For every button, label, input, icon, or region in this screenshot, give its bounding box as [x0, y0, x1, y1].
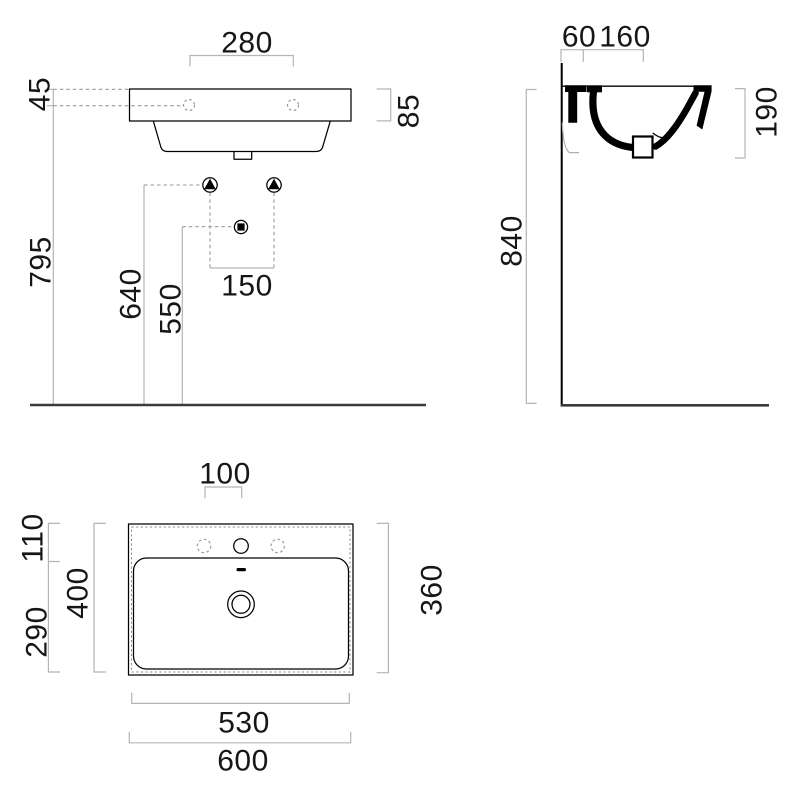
washbasin-technical-drawing: 280 45 795 85 640 550 150	[0, 0, 800, 800]
dim-label-overall-depth: 400	[62, 567, 95, 619]
section-exterior-profile	[562, 123, 579, 153]
dim-label-inner-depth: 360	[416, 564, 449, 616]
drawing-svg: 280 45 795 85 640 550 150	[0, 0, 800, 800]
dim-bracket-inner-depth	[377, 523, 389, 672]
drain-point-square-icon	[237, 223, 244, 230]
plan-overflow-slot	[237, 568, 247, 571]
dim-label-section-depth: 190	[751, 86, 784, 138]
dim-label-drain-height: 550	[155, 283, 188, 335]
dim-label-rim-height: 840	[496, 215, 529, 267]
dim-label-tap-axis-height: 795	[25, 236, 58, 288]
section-front-bowl-wall	[656, 93, 696, 147]
basin-section	[562, 85, 712, 157]
dim-label-tap-pitch: 100	[199, 458, 251, 491]
front-view: 280 45 795 85 640 550 150	[24, 27, 427, 406]
dim-label-fixing-spacing: 150	[221, 270, 273, 303]
dim-bracket-overall-depth	[94, 523, 106, 672]
dim-bracket-apron	[377, 89, 391, 121]
section-drain-outlet	[633, 137, 653, 158]
dim-label-rim-to-tap: 45	[24, 77, 57, 111]
plan-tap-hole-center	[234, 539, 249, 554]
plan-view: 100 110 290 400 360 530 600	[17, 458, 449, 778]
basin-front-apron	[130, 89, 352, 121]
dim-label-bowl-rear-depth: 290	[21, 606, 54, 658]
side-view: 60 160 190 840	[496, 21, 784, 406]
dim-label-bracket-height: 640	[115, 268, 148, 320]
dim-label-hole-to-tap: 160	[599, 21, 651, 54]
dim-bracket-section-depth	[735, 89, 745, 158]
basin-front-bowl-underside	[153, 121, 330, 152]
basin-front-drain-stub	[234, 152, 252, 160]
dim-label-wall-to-hole: 60	[562, 21, 596, 54]
section-wall-fixing-bar	[565, 85, 587, 123]
dim-label-overall-width: 600	[217, 745, 269, 778]
dim-bracket-bowl-width	[132, 693, 350, 704]
dim-label-apron: 85	[393, 94, 426, 128]
dim-label-bowl-width: 530	[218, 707, 270, 740]
dim-label-tap-spacing: 280	[221, 27, 273, 60]
dim-label-rim-to-bowl: 110	[17, 513, 50, 562]
